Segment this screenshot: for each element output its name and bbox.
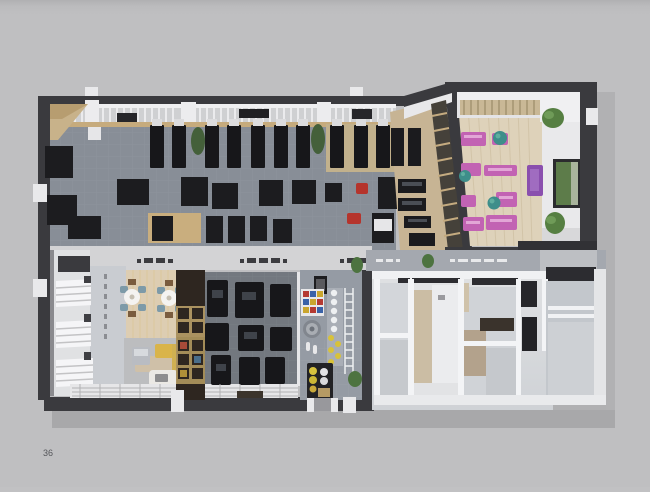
svg-text:36: 36 — [43, 448, 53, 458]
